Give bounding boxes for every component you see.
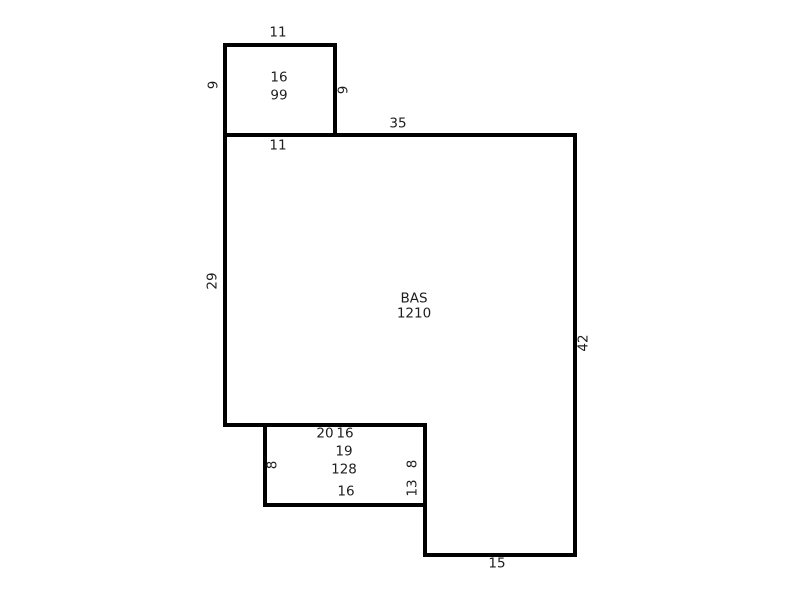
wall-top-addition-top	[223, 43, 337, 47]
dim-main-bottom-right: 15	[488, 557, 505, 571]
dim-main-right: 42	[577, 334, 591, 351]
wall-bottom-addition-bottom	[263, 503, 427, 507]
dim-top-addition-right: 9	[337, 86, 351, 95]
dim-bottom-addition-bottom: 16	[337, 485, 354, 499]
area-code-main: BAS	[400, 292, 427, 306]
dim-main-bottom: 20	[316, 427, 333, 441]
area-code-bottom-addition: 19	[335, 445, 352, 459]
dim-top-addition-top: 11	[269, 26, 286, 40]
area-value-top-addition: 99	[270, 89, 287, 103]
dim-bottom-addition-top: 16	[336, 427, 353, 441]
dim-main-left: 29	[206, 272, 220, 289]
dim-top-addition-left: 9	[207, 81, 221, 90]
dim-main-top: 35	[389, 117, 406, 131]
dim-main-step-right: 13	[406, 479, 420, 496]
dim-bottom-addition-left: 8	[266, 461, 280, 470]
area-value-bottom-addition: 128	[331, 463, 357, 477]
wall-main-step-right	[423, 423, 427, 557]
area-code-top-addition: 16	[270, 71, 287, 85]
wall-top-addition-left	[223, 43, 227, 137]
floorplan-sketch: 11 9 9 16 99 11 35 29 42 BAS 1210 20 13 …	[0, 0, 800, 600]
dim-top-addition-bottom: 11	[269, 139, 286, 153]
area-value-main: 1210	[397, 307, 431, 321]
dim-bottom-addition-right: 8	[406, 460, 420, 469]
wall-main-left	[223, 133, 227, 427]
